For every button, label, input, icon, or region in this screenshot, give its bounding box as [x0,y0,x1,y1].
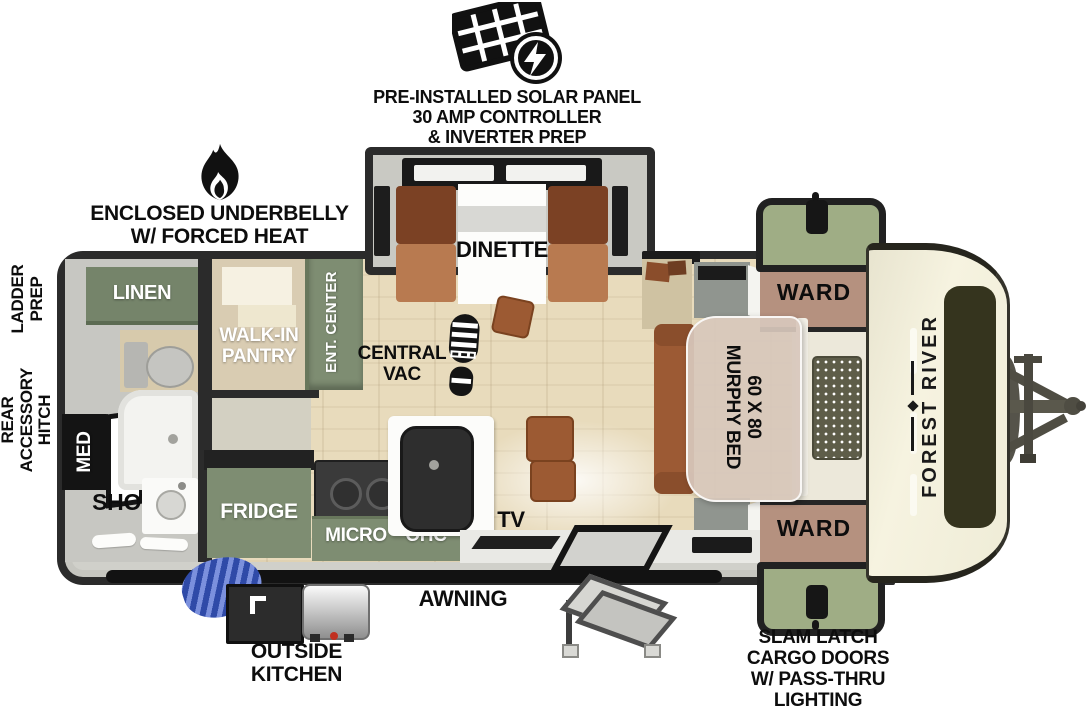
nightstand-top [698,266,746,280]
step-foot [562,644,579,658]
outside-kitchen-unit [226,584,304,644]
hallway-floor [212,390,311,450]
solar-panel-icon [452,2,564,86]
solar-note: PRE-INSTALLED SOLAR PANEL 30 AMP CONTROL… [372,88,642,147]
pantry-shelf [222,267,292,305]
toilet [146,346,194,388]
pantry-shelf [238,305,296,327]
dinette-bench-right [548,186,608,244]
jack-foot [1020,454,1036,463]
label-murphy-bed: 60 X 80 MURPHY BED [719,321,765,493]
dinette-window-right [612,186,628,256]
chair [526,416,574,462]
bottom-window [692,537,752,553]
chair [530,460,576,502]
cargo-latch [806,585,828,619]
label-linen: LINEN [86,282,198,304]
window-pane [506,165,586,181]
pillow [812,356,862,460]
towel [140,537,189,551]
floorplan-diagram: PRE-INSTALLED SOLAR PANEL 30 AMP CONTROL… [0,0,1087,717]
vanity-faucet [178,482,186,490]
label-central-vac: CENTRAL VAC [352,344,452,386]
griddle-valve [330,632,338,640]
label-tv: TV [486,508,536,532]
dinette-window-left [374,186,390,256]
cargo-latch [806,200,828,234]
sink-drain [429,460,439,470]
shower-pan [118,390,198,490]
coupler-tip [1076,401,1086,411]
label-outside-kitchen: OUTSIDE KITCHEN [224,640,369,686]
label-slam-latch: SLAM LATCH CARGO DOORS W/ PASS-THRU LIGH… [732,628,904,712]
front-cap-decal [944,286,996,528]
dinette-table-shadow [458,206,546,232]
label-ward-bottom: WARD [760,516,868,541]
burner [330,478,362,510]
vanity-sink [156,490,186,520]
label-fridge: FRIDGE [207,500,311,523]
step-foot [644,644,661,658]
kitchen-counter [204,450,314,470]
dinette-bench-left [396,186,456,244]
kitchen-sink [400,426,474,532]
tongue-jack-top [1014,356,1042,363]
underbelly-note: ENCLOSED UNDERBELLY W/ FORCED HEAT [82,202,357,248]
label-ent-center: ENT. CENTER [323,259,341,385]
label-med: MED [72,416,98,488]
label-ladder-prep: LADDER PREP [5,252,51,346]
brand-name: FOREST RIVER [919,314,942,498]
label-awning: AWNING [408,587,518,611]
flame-icon [194,142,246,202]
drawbar [1002,400,1072,413]
toilet-tank [124,342,148,388]
tongue-jack [1024,354,1033,460]
label-ward-top: WARD [760,280,868,305]
chair [490,294,535,339]
shower-drain [168,434,178,444]
label-rear-accessory-hitch: REAR ACCESSORY HITCH [0,364,58,476]
label-walk-in-pantry: WALK-IN PANTRY [200,326,318,368]
outside-faucet [250,596,255,614]
label-micro: MICRO [316,526,396,547]
brand-mark: FOREST RIVER [901,270,947,542]
label-dinette: DINETTE [436,238,568,262]
cargo-latch-stem [812,192,819,201]
window-pane [414,165,494,181]
tv-panel [471,536,560,549]
boot-print-icon [443,313,483,399]
forest-river-emblem-icon [907,361,919,451]
counter-item [668,260,687,275]
